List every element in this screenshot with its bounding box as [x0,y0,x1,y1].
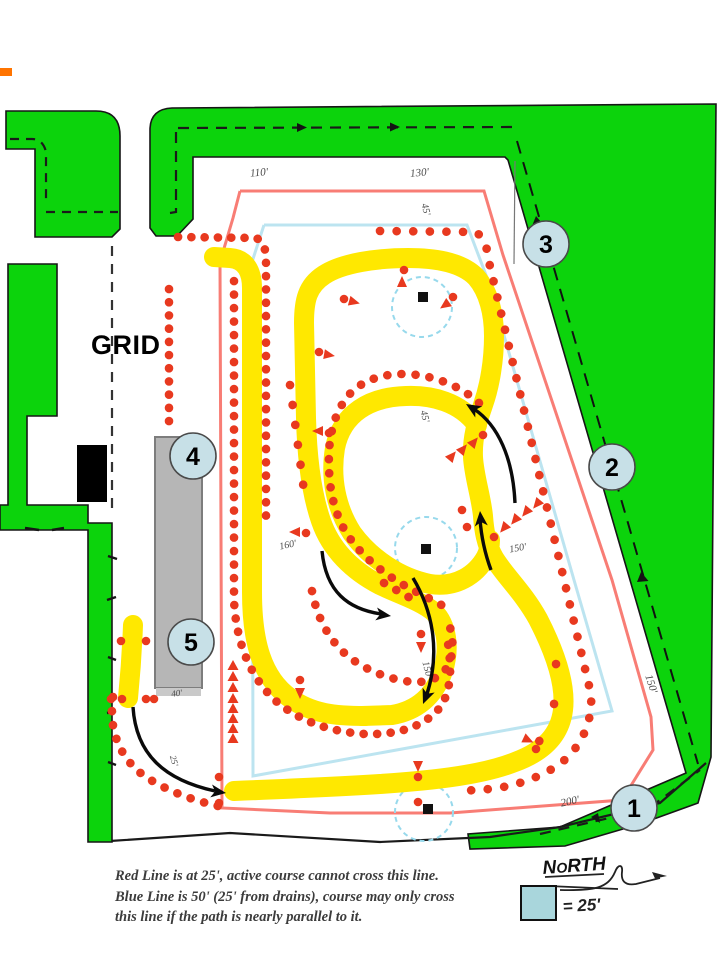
svg-text:2: 2 [605,454,619,482]
svg-text:= 25': = 25' [562,895,602,916]
svg-text:this line if the path is nearl: this line if the path is nearly parallel… [115,909,362,925]
svg-text:110': 110' [250,166,270,180]
svg-text:5: 5 [184,629,198,657]
svg-text:1: 1 [627,795,641,823]
svg-text:4: 4 [186,443,200,471]
svg-text:GRID: GRID [91,330,161,360]
svg-text:3: 3 [539,231,553,259]
svg-text:Red Line is at 25', active cou: Red Line is at 25', active course cannot… [114,868,439,884]
svg-text:Blue Line is 50' (25' from dra: Blue Line is 50' (25' from drains), cour… [114,889,455,905]
svg-text:130': 130' [410,166,430,180]
